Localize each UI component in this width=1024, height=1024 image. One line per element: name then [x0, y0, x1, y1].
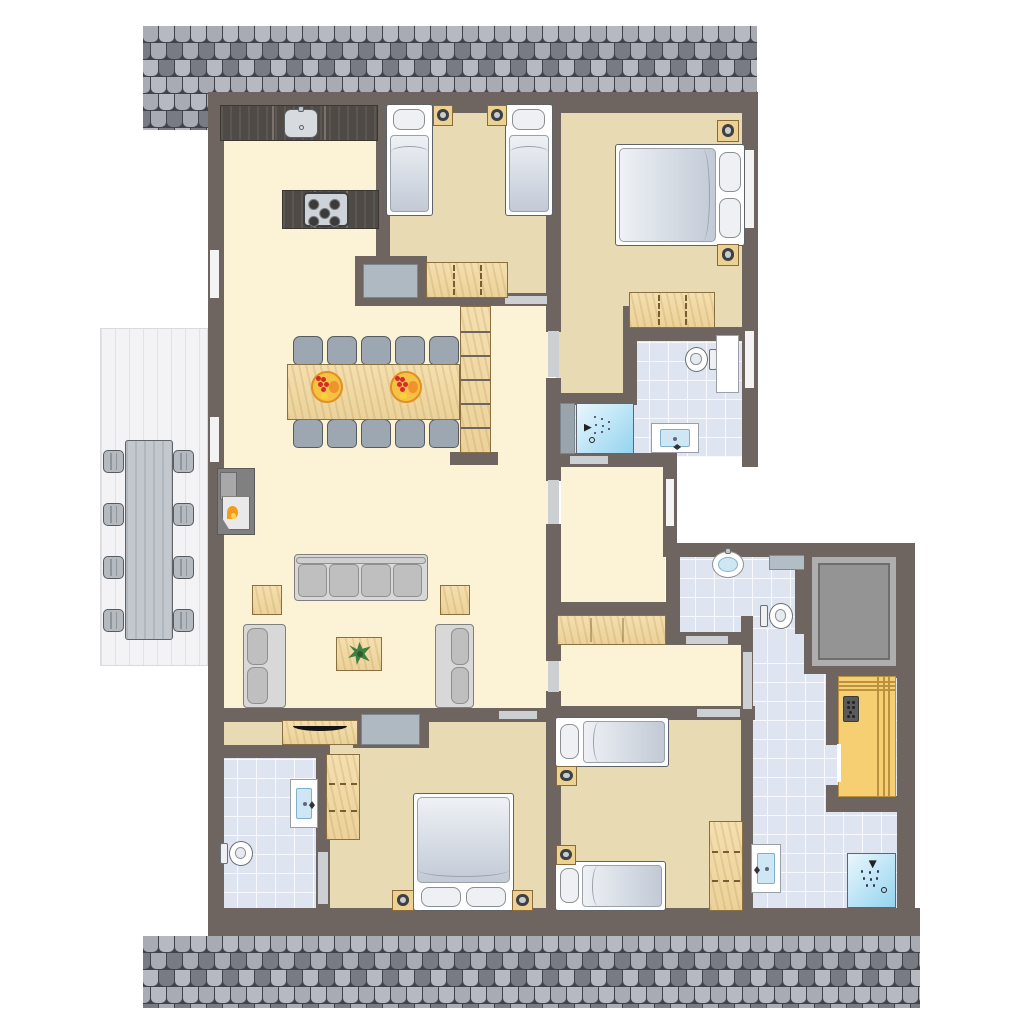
- roof-tile: [463, 60, 478, 76]
- roof-tile: [263, 43, 278, 59]
- roof-tile: [687, 26, 702, 42]
- roof-tile: [511, 1004, 526, 1008]
- lamp-shade: [725, 251, 731, 257]
- roof-tile: [303, 936, 318, 952]
- sauna-line: [839, 681, 895, 683]
- roof-tile: [351, 936, 366, 952]
- shower-head-icon: [869, 860, 877, 868]
- door-opening: [318, 852, 328, 904]
- roof-tile: [783, 936, 798, 952]
- stripe: [110, 559, 112, 576]
- roof-tile: [447, 60, 462, 76]
- wardrobe-divider: [685, 295, 687, 325]
- roof-tile: [543, 970, 558, 986]
- roof-tile: [159, 128, 174, 130]
- roof-tile: [615, 953, 630, 969]
- sofa-back: [296, 557, 425, 564]
- terrace-chair: [173, 503, 194, 526]
- terrace-chair: [173, 556, 194, 579]
- window-opening: [666, 479, 674, 526]
- pillow: [466, 887, 506, 907]
- roof-tile: [599, 953, 614, 969]
- roof-tile: [143, 953, 150, 969]
- roof-tile: [463, 1004, 478, 1008]
- door-opening: [548, 480, 559, 524]
- sofa-cushion: [329, 564, 359, 597]
- roof-tile: [823, 987, 838, 1003]
- roof-tile: [615, 77, 630, 93]
- roof-tile: [495, 26, 510, 42]
- roof-tile: [351, 60, 366, 76]
- stripe: [180, 453, 182, 470]
- roof-tile: [327, 43, 342, 59]
- roof-tile: [367, 1004, 382, 1008]
- roof-tile: [311, 987, 326, 1003]
- roof-tile: [303, 26, 318, 42]
- roof-tile: [767, 970, 782, 986]
- mattress: [390, 135, 429, 212]
- roof-tile: [175, 936, 190, 952]
- sofa-cushion: [393, 564, 423, 597]
- elevator-car: [818, 563, 890, 660]
- roof-tile: [343, 987, 358, 1003]
- roof-tile: [647, 43, 662, 59]
- coffee-table-with-plant: [336, 637, 382, 671]
- roof-tile: [359, 77, 374, 93]
- roof-tile: [751, 936, 766, 952]
- roof-tile: [335, 1004, 350, 1008]
- roof-tile: [519, 43, 534, 59]
- door-opening: [499, 711, 537, 719]
- roof-tile: [799, 936, 814, 952]
- roof-tile: [783, 1004, 798, 1008]
- wall: [826, 796, 897, 812]
- roof-tile: [375, 43, 390, 59]
- roof-tile: [239, 26, 254, 42]
- roof-tile: [279, 953, 294, 969]
- stair-tread: [461, 379, 490, 381]
- roof-tile: [839, 953, 854, 969]
- mattress: [417, 797, 510, 883]
- roof-tile: [911, 970, 920, 986]
- roof-tile: [247, 77, 262, 93]
- roof-tile: [703, 60, 718, 76]
- roof-tile: [359, 43, 374, 59]
- burner: [319, 208, 330, 219]
- roof-tile: [471, 77, 486, 93]
- terrace-chair: [103, 609, 124, 632]
- roof-tile: [263, 77, 278, 93]
- roof-tile: [535, 953, 550, 969]
- roof-tile: [159, 1004, 174, 1008]
- roof-tile: [407, 43, 422, 59]
- dining-chair: [293, 419, 323, 448]
- lamp-shade: [725, 127, 731, 133]
- roof-tile: [439, 987, 454, 1003]
- roof-tile: [879, 970, 894, 986]
- roof-tile: [223, 1004, 238, 1008]
- sauna: [838, 676, 896, 797]
- roof-tile: [815, 1004, 830, 1008]
- roof-tile: [143, 26, 158, 42]
- drain: [299, 125, 304, 130]
- roof-tile: [383, 26, 398, 42]
- wardrobe-divider: [329, 783, 357, 785]
- roof-tile: [303, 970, 318, 986]
- roof-tile: [655, 1004, 670, 1008]
- roof-tile: [255, 1004, 270, 1008]
- roof-tile: [271, 936, 286, 952]
- roof-tile: [551, 77, 566, 93]
- roof-tile: [631, 43, 646, 59]
- sauna-bench-line: [877, 677, 879, 796]
- roof-tile: [151, 43, 166, 59]
- roof-tile: [735, 936, 750, 952]
- roof-tile: [751, 1004, 766, 1008]
- double-bed: [615, 144, 745, 246]
- lamp: [560, 770, 572, 782]
- roof-tile: [703, 936, 718, 952]
- stripe: [116, 506, 118, 523]
- spray-dot: [877, 870, 880, 873]
- roof-tile: [407, 953, 422, 969]
- roof-tile: [207, 60, 222, 76]
- stripe: [180, 612, 182, 629]
- roof-tile: [559, 1004, 574, 1008]
- roof-tile: [631, 987, 646, 1003]
- roof-tile: [143, 970, 158, 986]
- roof-tile: [711, 953, 726, 969]
- handle-dot: [881, 887, 887, 893]
- roof-tile: [311, 77, 326, 93]
- roof-tile: [591, 60, 606, 76]
- faucet-dot: [303, 802, 307, 806]
- dining-chair: [361, 419, 391, 448]
- roof-tile: [255, 26, 270, 42]
- roof-tile: [191, 1004, 206, 1008]
- roof-tile: [671, 970, 686, 986]
- roof-tile: [223, 26, 238, 42]
- roof-tile: [727, 953, 742, 969]
- roof-tile: [351, 26, 366, 42]
- roof-tile: [295, 43, 310, 59]
- stripe: [116, 559, 118, 576]
- roof-tile: [431, 936, 446, 952]
- window-opening: [210, 417, 219, 462]
- grain: [622, 618, 624, 642]
- wardrobe-divider: [480, 265, 482, 295]
- roof-tile: [751, 970, 766, 986]
- roof-tile: [535, 987, 550, 1003]
- roof-tile: [639, 1004, 654, 1008]
- roof-tile: [143, 128, 158, 130]
- roof-tile: [767, 1004, 782, 1008]
- shower-head-icon: [584, 424, 592, 432]
- roof-tile: [431, 26, 446, 42]
- roof-tile: [719, 936, 734, 952]
- roof-tile: [895, 936, 910, 952]
- roof-tile: [143, 94, 158, 110]
- roof-tile: [391, 953, 406, 969]
- roof-tile: [623, 1004, 638, 1008]
- roof-tile: [527, 1004, 542, 1008]
- roof-tile: [455, 953, 470, 969]
- roof-tile: [847, 936, 862, 952]
- roof-tile: [887, 987, 902, 1003]
- window-opening: [210, 250, 219, 298]
- roof-tile: [415, 1004, 430, 1008]
- roof-tile: [727, 987, 742, 1003]
- roof-tile: [679, 987, 694, 1003]
- roof-tile: [567, 953, 582, 969]
- roof-tile: [487, 77, 502, 93]
- roof-tile: [775, 953, 790, 969]
- roof-tile: [255, 60, 270, 76]
- roof-tile: [415, 60, 430, 76]
- stripe: [116, 453, 118, 470]
- roof-tile: [455, 43, 470, 59]
- roof-tile: [223, 60, 238, 76]
- counter-seam: [272, 106, 274, 140]
- roof-tile: [279, 43, 294, 59]
- roof-tile: [239, 1004, 254, 1008]
- loveseat-cushion: [247, 667, 268, 704]
- roof-tile: [607, 26, 622, 42]
- roof-tile: [647, 987, 662, 1003]
- roof-tile: [199, 111, 208, 127]
- roof-tile: [495, 1004, 510, 1008]
- roof-tile: [279, 77, 294, 93]
- roof-tile: [447, 1004, 462, 1008]
- roof-tile: [183, 43, 198, 59]
- roof-tile: [159, 26, 174, 42]
- lamp-shade: [563, 773, 569, 779]
- roof-tile: [399, 936, 414, 952]
- single-bed: [555, 861, 666, 911]
- spray-dot: [595, 424, 598, 427]
- roof-tile: [319, 60, 334, 76]
- roof-tile: [399, 1004, 414, 1008]
- roof-tile: [319, 26, 334, 42]
- wall: [208, 908, 920, 936]
- roof-tile: [767, 936, 782, 952]
- roof-tile: [239, 60, 254, 76]
- wardrobe: [326, 754, 360, 840]
- terrace-chair: [173, 450, 194, 473]
- roof-tile: [831, 970, 846, 986]
- stripe: [116, 612, 118, 629]
- roof-tile: [215, 77, 230, 93]
- roof-tile: [911, 936, 920, 952]
- roof-tile: [543, 26, 558, 42]
- roof-tile: [663, 43, 678, 59]
- window-opening: [745, 331, 754, 388]
- roof-tile: [159, 60, 174, 76]
- roof-tile: [879, 1004, 894, 1008]
- spray-dot: [870, 878, 873, 881]
- roof-tile: [831, 936, 846, 952]
- shower: [576, 403, 634, 454]
- nightstand: [717, 120, 739, 142]
- roof-tile: [511, 26, 526, 42]
- roof-tile: [359, 953, 374, 969]
- mattress: [509, 135, 549, 212]
- roof-tile: [863, 936, 878, 952]
- roof-tile: [607, 1004, 622, 1008]
- roof-tile: [231, 77, 246, 93]
- sofa-cushion: [298, 564, 328, 597]
- spray-dot: [863, 877, 866, 880]
- single-bed: [555, 717, 669, 767]
- blanket-fold: [418, 863, 509, 877]
- roof-tile: [735, 970, 750, 986]
- roof-tile: [647, 953, 662, 969]
- roof-tile: [183, 953, 198, 969]
- roof-tile: [751, 60, 757, 76]
- stair-tread: [461, 427, 490, 429]
- roof-tile: [695, 43, 710, 59]
- roof-tile: [327, 987, 342, 1003]
- blanket-fold: [391, 146, 428, 158]
- roof-tile: [175, 128, 190, 130]
- fruit-bowl: [390, 371, 422, 403]
- washbasin: [751, 844, 781, 893]
- roof-tile: [727, 43, 742, 59]
- roof-tile: [623, 970, 638, 986]
- roof-tile: [719, 26, 734, 42]
- roof-tile: [167, 953, 182, 969]
- roof-tile: [175, 26, 190, 42]
- lamp: [722, 124, 735, 137]
- spray-dot: [594, 432, 597, 435]
- toilet-bowl: [685, 347, 709, 373]
- roof-tile: [431, 970, 446, 986]
- nightstand: [433, 105, 453, 126]
- roof-tile: [263, 953, 278, 969]
- roof-tile: [247, 953, 262, 969]
- roof-tile: [327, 953, 342, 969]
- basin-inner: [718, 557, 737, 572]
- roof-tile: [815, 970, 830, 986]
- roof-tile: [511, 60, 526, 76]
- roof-tile: [271, 970, 286, 986]
- pillow: [560, 724, 579, 759]
- niche-dresser: [363, 264, 418, 298]
- roof-tile: [639, 936, 654, 952]
- roof-tile: [823, 953, 838, 969]
- roof-tile: [255, 936, 270, 952]
- sofa-cushion: [361, 564, 391, 597]
- roof-tile: [583, 77, 598, 93]
- roof-tile: [479, 1004, 494, 1008]
- roof-tile: [183, 77, 198, 93]
- roof-tile: [519, 77, 534, 93]
- roof-tile: [511, 970, 526, 986]
- roof-tile: [711, 987, 726, 1003]
- roof-tile: [215, 953, 230, 969]
- roof-tile: [471, 987, 486, 1003]
- spray-dot: [608, 421, 611, 424]
- elevator-shaft: [804, 549, 904, 674]
- faucet-dot: [673, 437, 677, 441]
- pillow: [719, 152, 741, 192]
- spray-dot: [602, 425, 605, 428]
- roof-tile: [567, 43, 582, 59]
- roof-tile: [599, 77, 614, 93]
- bathroom2-floor: [218, 752, 320, 912]
- roof-tile: [271, 1004, 286, 1008]
- roof-tile: [855, 953, 870, 969]
- roof-tile: [367, 26, 382, 42]
- terrace-chair: [103, 503, 124, 526]
- roof-tile: [191, 94, 206, 110]
- roof-tile: [615, 987, 630, 1003]
- roof-tile: [359, 987, 374, 1003]
- wall: [546, 378, 561, 481]
- roof-tile: [287, 936, 302, 952]
- roof-tile: [807, 987, 822, 1003]
- stair-tread: [461, 331, 490, 333]
- roof-tile: [423, 77, 438, 93]
- roof-tile: [191, 26, 206, 42]
- roof-tile: [415, 936, 430, 952]
- roof-tile: [743, 43, 757, 59]
- roof-tile: [655, 60, 670, 76]
- stove-cooktop: [303, 192, 349, 227]
- roof-tile: [807, 953, 822, 969]
- roof-tile: [535, 77, 550, 93]
- door-opening: [505, 296, 547, 304]
- roof-tile: [463, 26, 478, 42]
- roof-tile: [167, 987, 182, 1003]
- roof-tile: [639, 970, 654, 986]
- roof-tile: [703, 1004, 718, 1008]
- washbasin: [290, 779, 318, 828]
- roof-tile: [327, 77, 342, 93]
- roof-tile: [679, 953, 694, 969]
- stripe: [186, 453, 188, 470]
- roof-tile: [223, 970, 238, 986]
- roof-tile: [143, 60, 158, 76]
- roof-tile: [671, 60, 686, 76]
- nightstand: [556, 766, 577, 786]
- wardrobe-divider: [712, 851, 740, 853]
- roof-tile: [407, 987, 422, 1003]
- roof-tile: [911, 1004, 920, 1008]
- single-bed: [386, 104, 433, 216]
- fruit-bowl: [311, 371, 343, 403]
- wall: [826, 785, 838, 796]
- roof-tile: [255, 970, 270, 986]
- roof-tile: [895, 1004, 910, 1008]
- double-bed: [413, 793, 514, 911]
- toilet-seat: [775, 609, 787, 622]
- roof-tile: [247, 987, 262, 1003]
- roof-tile: [383, 1004, 398, 1008]
- nightstand: [392, 890, 414, 911]
- roof-tile: [495, 970, 510, 986]
- shower: [847, 853, 896, 908]
- roof-tile: [167, 43, 182, 59]
- roof-tile: [695, 77, 710, 93]
- roof-tile: [543, 1004, 558, 1008]
- roof-tile: [679, 43, 694, 59]
- window-opening: [745, 150, 754, 228]
- roof-tile: [207, 936, 222, 952]
- stripe: [180, 506, 182, 523]
- wardrobe: [629, 292, 715, 328]
- roof-tile: [719, 60, 734, 76]
